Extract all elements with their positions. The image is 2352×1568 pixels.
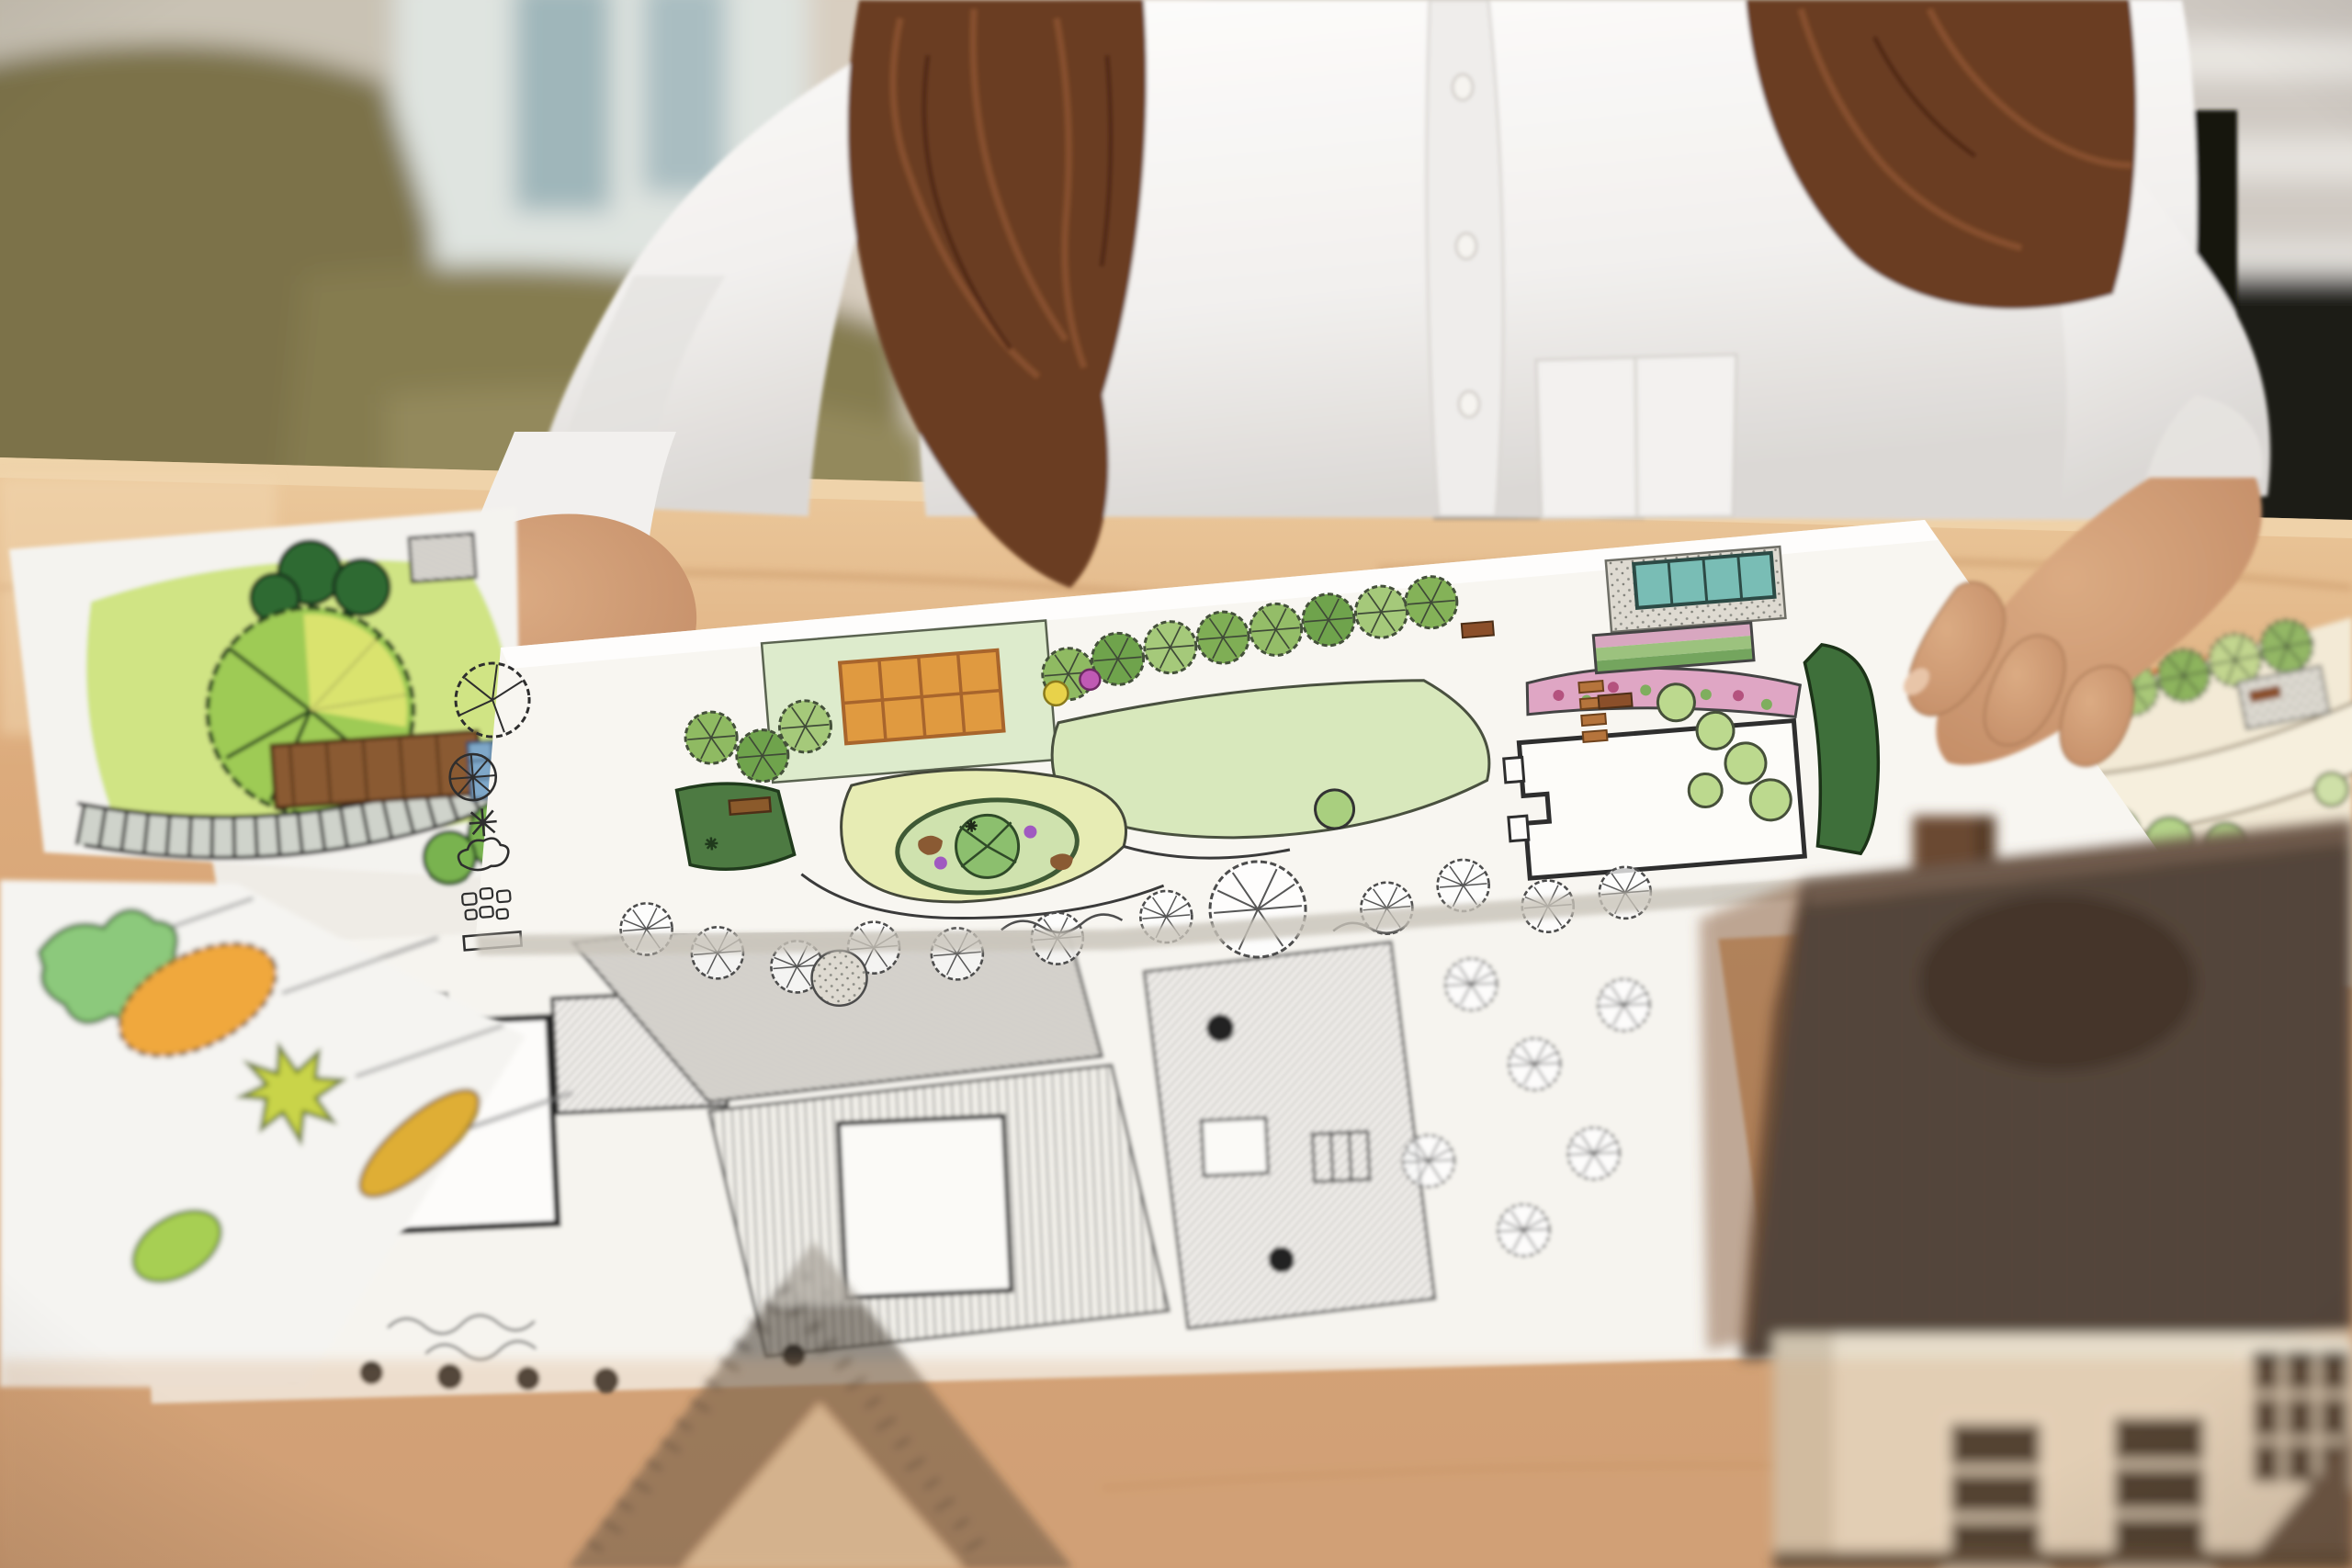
photo-scene xyxy=(0,0,2352,1568)
vignette xyxy=(0,0,2352,1568)
scene-canvas xyxy=(0,0,2352,1568)
